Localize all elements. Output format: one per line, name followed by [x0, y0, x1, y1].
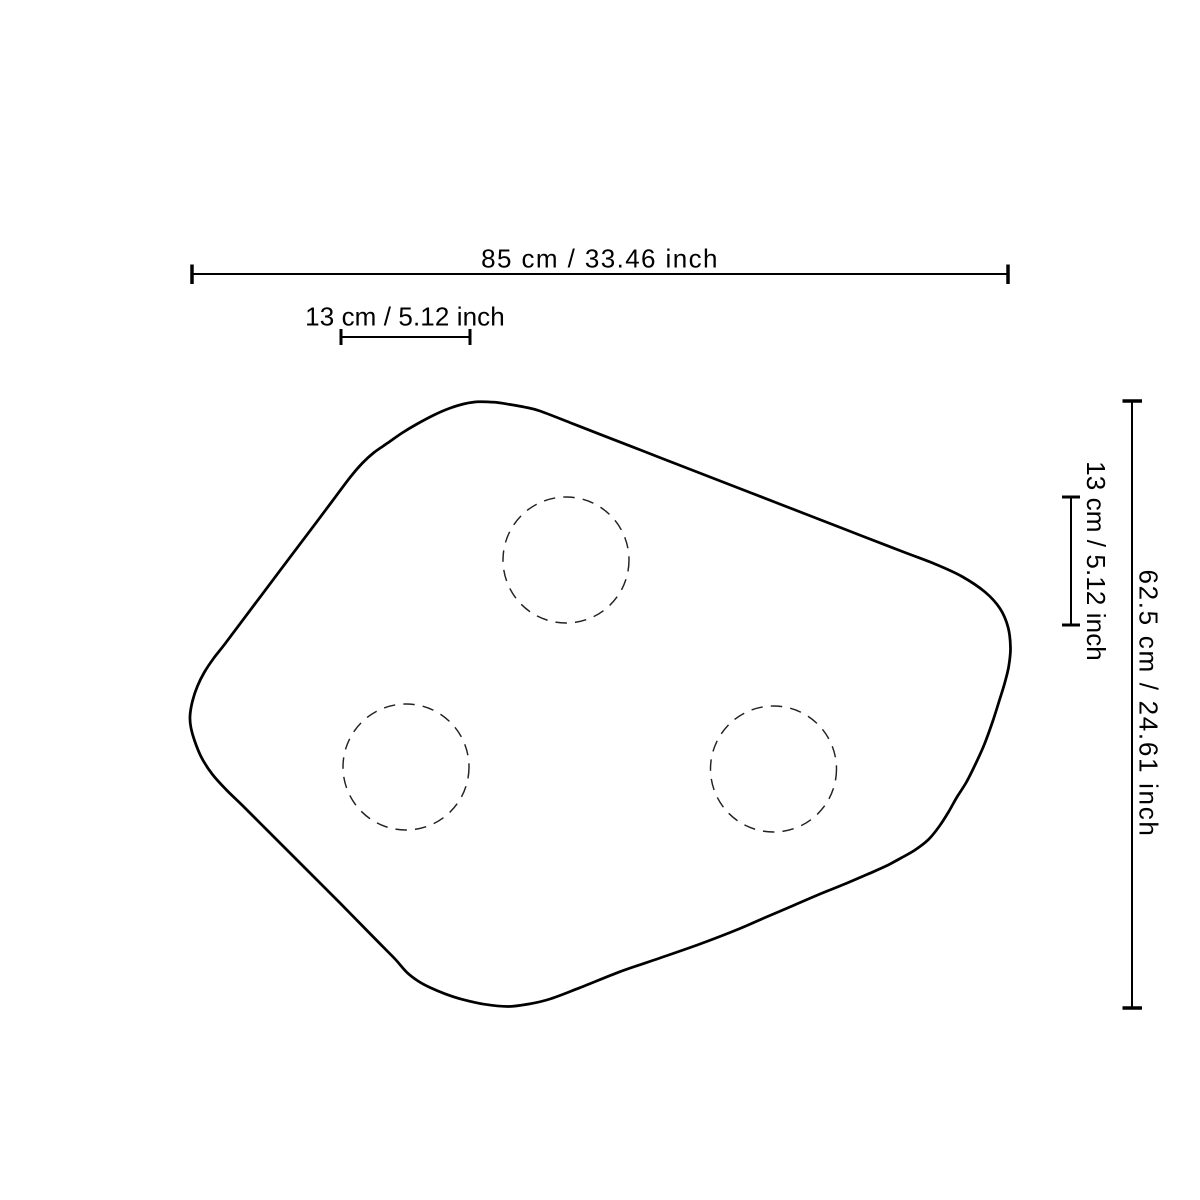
svg-text:85 cm / 33.46 inch: 85 cm / 33.46 inch [481, 244, 719, 274]
svg-text:13 cm / 5.12 inch: 13 cm / 5.12 inch [1081, 461, 1111, 661]
svg-text:13 cm / 5.12 inch: 13 cm / 5.12 inch [305, 302, 505, 332]
svg-text:62.5 cm / 24.61 inch: 62.5 cm / 24.61 inch [1134, 569, 1164, 837]
